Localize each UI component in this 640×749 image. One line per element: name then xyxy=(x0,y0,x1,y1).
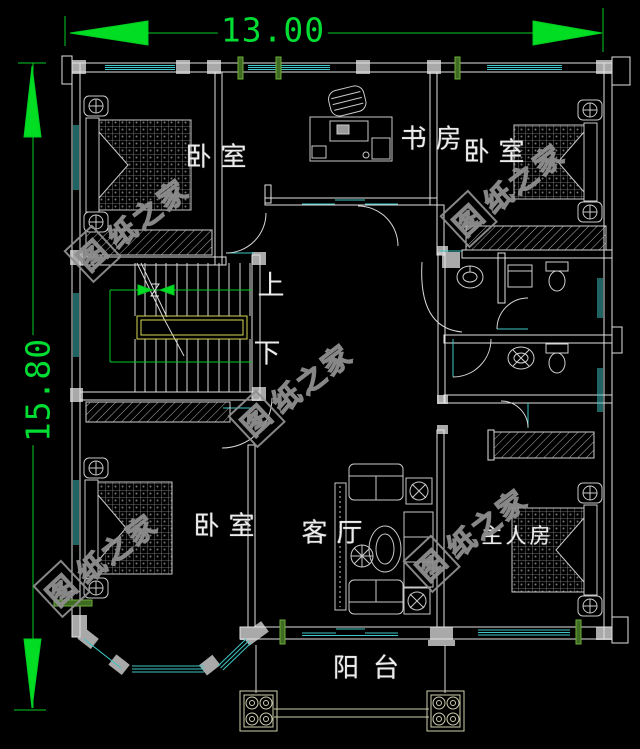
dimension-height-label: 15.80 xyxy=(19,335,58,445)
bay-window-front xyxy=(132,666,204,672)
stair-treads-lower xyxy=(135,339,250,392)
wall-bath2-bottom xyxy=(444,395,612,403)
dim-arrow-left xyxy=(70,21,148,45)
wall-hall-bath xyxy=(438,253,445,403)
dim-arrow-down xyxy=(24,639,41,708)
label-stair-up: 上 xyxy=(258,264,285,303)
door-bedroom2 xyxy=(358,206,398,246)
coffee-table xyxy=(369,526,401,572)
dim-arrow-up xyxy=(24,66,41,137)
parapet-bottom-right xyxy=(612,617,628,643)
bathroom-fixtures xyxy=(457,262,568,373)
label-living-room: 客厅 xyxy=(292,513,371,550)
toilet-bath1-tank xyxy=(546,262,568,271)
door-bedroom1 xyxy=(226,213,266,253)
study-desk xyxy=(310,84,392,161)
label-bedroom-top-left: 卧室 xyxy=(176,137,255,174)
toilet-bath2-tank xyxy=(546,344,568,353)
parapet-top-right xyxy=(612,57,630,85)
wall-bedroom2-bottom xyxy=(462,250,612,258)
window-left-stair xyxy=(74,293,78,357)
label-balcony: 阳台 xyxy=(319,648,413,685)
balcony-column-right xyxy=(427,691,464,731)
wall-stair-bottom xyxy=(80,392,260,400)
dimension-width-label: 13.00 xyxy=(218,11,328,50)
window-right-bath1 xyxy=(598,278,602,318)
wall-shaft-bump xyxy=(612,327,622,353)
window-left-bedroom1 xyxy=(74,125,78,190)
dim-arrow-right xyxy=(533,21,602,45)
window-left-bedroom3 xyxy=(74,480,78,545)
study-chair xyxy=(327,84,368,118)
wall-bath1-partition xyxy=(498,253,505,303)
wall-bath1-bath2 xyxy=(444,335,612,343)
door-bath2 xyxy=(453,339,491,377)
window-living-balcony-door xyxy=(302,629,398,636)
window-study-top xyxy=(248,66,330,70)
wall-study-bottom xyxy=(265,198,437,205)
balcony-column-left xyxy=(240,691,277,731)
door-hall-bath xyxy=(422,262,462,332)
label-stair-down: 下 xyxy=(254,332,281,371)
wall-right xyxy=(604,63,612,639)
window-bedroom2-top xyxy=(487,66,562,70)
toilet-bath1-bowl xyxy=(549,271,565,291)
bay-window-left-diag xyxy=(84,639,121,668)
parapet-top-left xyxy=(62,56,72,84)
window-master-bottom xyxy=(478,630,570,635)
staircase xyxy=(110,263,252,392)
bay-window-right-diag xyxy=(218,639,251,670)
cabinet-bath1 xyxy=(508,265,532,287)
label-bedroom-bottom-left: 卧室 xyxy=(184,506,263,543)
stair-handrail xyxy=(137,316,247,339)
window-right-bath2 xyxy=(598,368,602,412)
window-bedroom1-top xyxy=(105,66,175,70)
floor-plan-canvas: 13.00 15.80 卧室 书房 卧室 卧室 客厅 主人房 阳台 上 下 图纸… xyxy=(0,0,640,749)
study-sliding-door xyxy=(302,200,398,204)
toilet-bath2-bowl xyxy=(549,353,565,373)
wardrobe-master xyxy=(494,432,594,458)
door-bath2-master xyxy=(501,401,528,427)
wardrobe-bedroom3 xyxy=(86,402,230,422)
